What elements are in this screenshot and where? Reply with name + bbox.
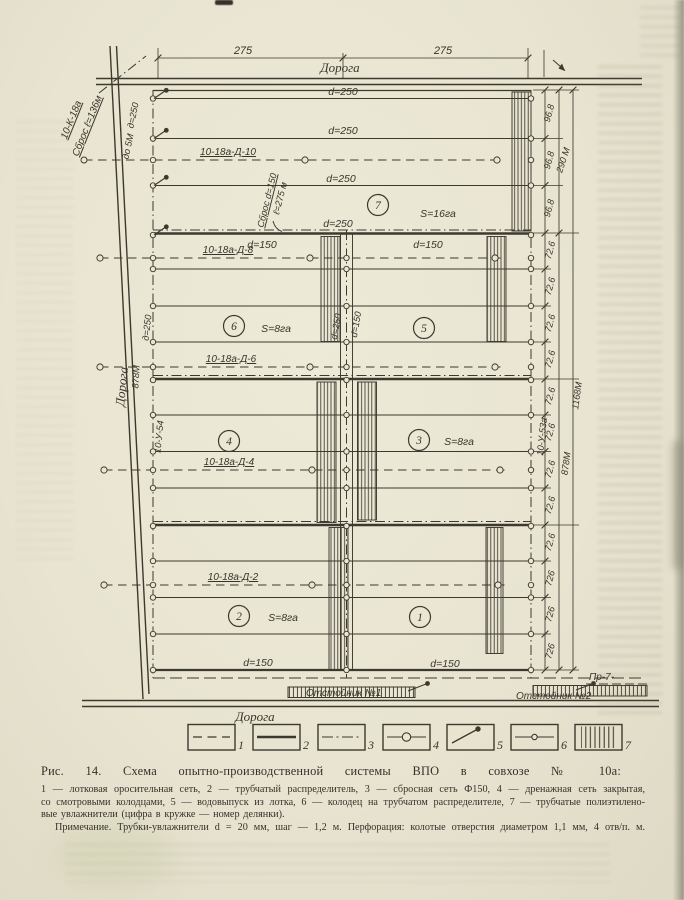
well-circle (150, 485, 155, 490)
manhole-circle (307, 255, 313, 261)
irrigation-diagram: Дорога Дорога Дорога 878М 275 275 (0, 0, 684, 762)
road-left-length: 878М (130, 365, 142, 389)
well-circle (528, 232, 533, 237)
legend-box-5 (447, 725, 494, 751)
pipe-label: d=250 (328, 86, 358, 98)
legend-symbol-humidifier (581, 727, 615, 749)
drain-label: 10-18а-Д-6 (206, 354, 257, 365)
legend: 1 2 3 4 5 6 7 (188, 725, 632, 753)
dimension-value: 96.8 (542, 197, 557, 218)
well-circle (528, 558, 533, 563)
well-circle (150, 303, 155, 308)
well-circle (344, 667, 349, 672)
pipe-label: d=150 (243, 657, 273, 669)
water-outlet-dot (164, 128, 169, 133)
road-bottom-label: Дорога (233, 709, 275, 724)
well-circle (344, 582, 349, 587)
pipe-label: d=150 (430, 658, 460, 670)
well-circle (528, 412, 533, 417)
well-circle (528, 96, 533, 101)
humidifier-strip (486, 528, 503, 654)
well-circle (344, 558, 349, 563)
well-circle (528, 377, 533, 382)
sump-label: Отстойник №1 (306, 688, 381, 699)
well-circle (528, 266, 533, 271)
well-circle (344, 266, 349, 271)
top-dim-left: 275 (233, 45, 253, 57)
well-circle (150, 523, 155, 528)
manhole-circle (309, 467, 315, 473)
top-dimension: 275 275 (155, 45, 565, 78)
manhole-circle (492, 364, 498, 370)
section-number: 7 (375, 200, 382, 212)
legend-symbol-manhole (532, 734, 537, 739)
legend-symbol-outlet (452, 730, 477, 744)
caption-line: вые увлажнители (цифра в кружке — номер … (41, 809, 645, 822)
section-area: S=8га (268, 612, 298, 624)
caption-line: 1 — лотковая оросительная сеть, 2 — труб… (41, 784, 645, 797)
well-circle (150, 412, 155, 417)
well-circle (528, 467, 533, 472)
caption-line: Примечание. Трубки-увлажнители d = 20 мм… (41, 822, 645, 835)
manhole-circle (495, 582, 501, 588)
pipe-label: d=150 (413, 239, 443, 251)
well-circle (344, 364, 349, 369)
page-edge-shadow (673, 0, 684, 900)
well-circle (150, 364, 155, 369)
legend-number: 5 (497, 738, 503, 752)
legend-symbol-outlet-dot (475, 726, 480, 731)
manhole-circle (307, 364, 313, 370)
well-circle (344, 485, 349, 490)
well-circle (150, 595, 155, 600)
sumps: Отстойник №1 Отстойник №2 Пр-7- (288, 672, 648, 702)
pipe-label: d=250 (326, 173, 356, 185)
inlet-pipe-label: д=250 (125, 101, 140, 129)
manhole-circle (492, 255, 498, 261)
manhole-circle (97, 364, 103, 370)
dimension-value: 96.8 (542, 149, 557, 170)
pipe-label-vertical: д=250 (141, 313, 154, 341)
well-circle (344, 595, 349, 600)
well-circle (344, 255, 349, 260)
section-number: 4 (226, 436, 232, 448)
water-outlet-dot (164, 88, 169, 93)
humidifier-strip (487, 237, 506, 342)
drain-label: 10-18а-Д-4 (204, 457, 255, 468)
legend-symbol-drain-well (402, 733, 410, 741)
north-arrow-head (559, 64, 566, 72)
well-circle (528, 136, 533, 141)
legend-number: 3 (367, 738, 374, 752)
water-outlet-dot (164, 175, 169, 180)
dimension-value: 96.8 (542, 102, 557, 123)
section-number: 5 (421, 323, 427, 335)
manhole-circle (494, 157, 500, 163)
road-top-label: Дорога (318, 60, 360, 75)
legend-number: 7 (625, 738, 632, 752)
well-circle (150, 582, 155, 587)
well-circle (528, 303, 533, 308)
humidifier-strip (321, 237, 340, 342)
well-circle (344, 339, 349, 344)
caption-line: со смотровыми колодцами, 5 — водовыпуск … (41, 797, 645, 810)
sump-label: Отстойник №2 (516, 691, 592, 702)
figure-caption: Рис. 14. Схема опытно-производственной с… (41, 764, 645, 835)
well-circle (150, 467, 155, 472)
well-circle (528, 595, 533, 600)
well-circle (150, 449, 155, 454)
legend-number: 2 (303, 738, 309, 752)
well-circle (344, 467, 349, 472)
dim-total-878: 878М (559, 451, 572, 476)
pipe-label: d=250 (328, 125, 358, 137)
figure-heading: Рис. 14. Схема опытно-производственной с… (41, 764, 645, 779)
water-outlet-tick (154, 178, 165, 186)
well-circle (528, 449, 533, 454)
section-area: S=8га (261, 323, 291, 335)
well-circle (344, 523, 349, 528)
outlet-dot (425, 681, 430, 686)
inlet-waste-line (99, 56, 146, 93)
well-circle (344, 449, 349, 454)
pipe-label: d=150 (247, 239, 277, 251)
well-circle (344, 631, 349, 636)
inlet-depth-label: до 5М (120, 132, 135, 160)
section-number: 2 (236, 611, 242, 623)
field-network: 10-18а-Д-10 10-18а-Д-8 10-18а-Д-6 10-18а… (84, 86, 644, 678)
manhole-circle (497, 467, 503, 473)
inlet-well-circle (81, 157, 87, 163)
well-circle (528, 631, 533, 636)
humidifier-strip (358, 382, 377, 520)
drain-label: 10-18а-Д-8 (203, 245, 254, 256)
legend-number: 1 (238, 738, 244, 752)
well-circle (150, 558, 155, 563)
well-circle (528, 364, 533, 369)
well-circle (150, 255, 155, 260)
well-circle (528, 339, 533, 344)
pipe-label-vertical: d=150 (349, 310, 364, 338)
well-circle (150, 266, 155, 271)
pipe-label: d=250 (323, 218, 353, 230)
section-number: 6 (231, 321, 237, 333)
water-outlet-tick (154, 131, 165, 139)
drain-label: 10-18а-Д-2 (208, 572, 259, 583)
well-circle (528, 255, 533, 260)
scanned-page: Дорога Дорога Дорога 878М 275 275 (0, 0, 684, 900)
manhole-circle (101, 467, 107, 473)
legend-number: 4 (433, 738, 439, 752)
well-circle (150, 157, 155, 162)
inlet-group: 10-К-18а Сброс ℓ=136м д=250 до 5М (59, 56, 146, 163)
well-circle (528, 485, 533, 490)
manhole-circle (101, 582, 107, 588)
well-circle (344, 303, 349, 308)
well-circle (344, 412, 349, 417)
water-outlet-tick (154, 91, 165, 99)
well-circle (528, 582, 533, 587)
riser-label: 10-У-54 (152, 420, 165, 454)
dim-total-1168: 1168М (570, 381, 584, 410)
manhole-circle (97, 255, 103, 261)
well-circle (528, 667, 533, 672)
section-area: S=16га (420, 208, 456, 220)
well-circle (528, 157, 533, 162)
outlet-code-label: Пр-7- (589, 672, 615, 683)
well-circle (150, 339, 155, 344)
section-area: S=8га (444, 436, 474, 448)
scan-edge-mark (215, 0, 233, 5)
manhole-circle (302, 157, 308, 163)
humidifier-strip (317, 382, 336, 523)
legend-number: 6 (561, 738, 567, 752)
section-number: 1 (417, 612, 423, 624)
well-circle (528, 523, 533, 528)
well-circle (528, 183, 533, 188)
well-circle (150, 631, 155, 636)
dim-total-290: 290 М (554, 146, 572, 175)
well-circle (150, 377, 155, 382)
top-dim-right: 275 (433, 45, 453, 57)
well-circle (150, 667, 155, 672)
well-circle (344, 377, 349, 382)
drain-label: 10-18а-Д-10 (200, 147, 256, 158)
manhole-circle (309, 582, 315, 588)
water-outlet-dot (164, 224, 169, 229)
humidifier-strip (512, 92, 531, 231)
section-number: 3 (415, 435, 422, 447)
